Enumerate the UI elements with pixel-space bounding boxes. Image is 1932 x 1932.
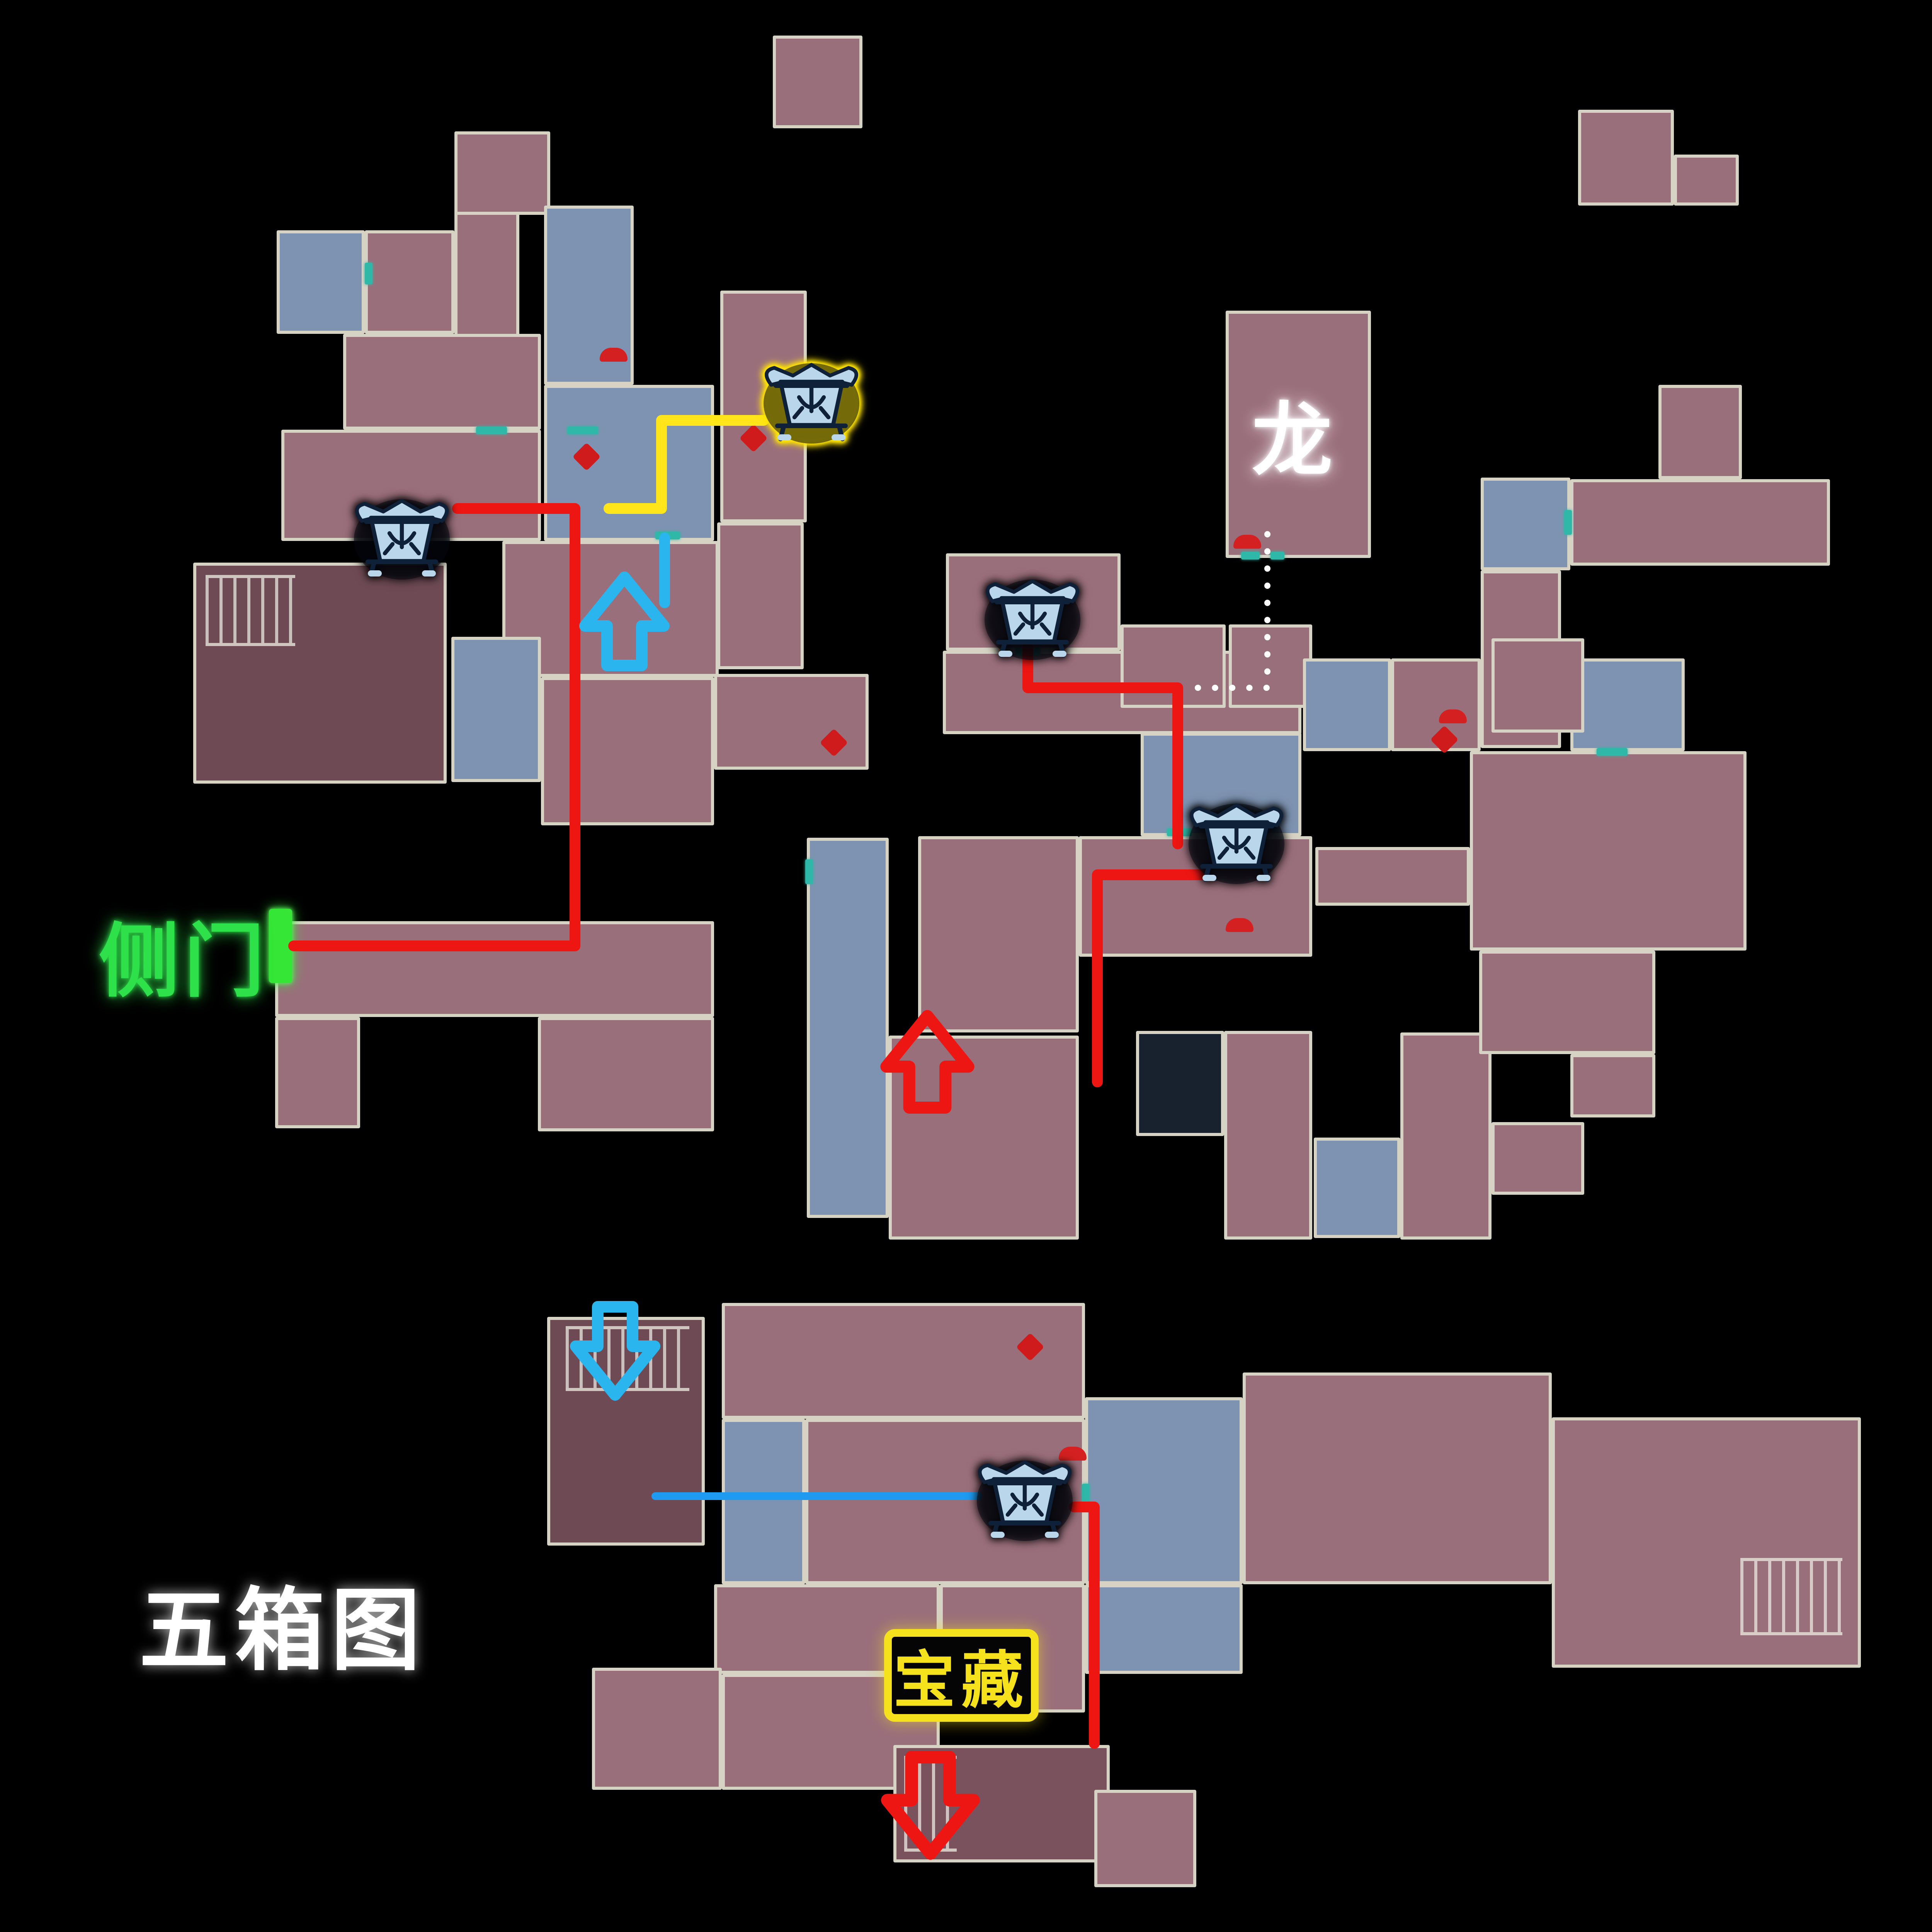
room-57: [1085, 1584, 1243, 1674]
room-8: [544, 385, 714, 541]
treasure-label: 宝藏: [884, 1629, 1039, 1722]
room-44: [1479, 951, 1655, 1054]
room-21: [946, 553, 1121, 651]
room-16: [275, 921, 714, 1017]
room-47: [1674, 155, 1739, 206]
room-40: [1658, 385, 1742, 479]
map-stage: 龙 侧门 五箱图 宝藏: [0, 0, 1932, 1932]
room-41: [1492, 638, 1584, 733]
room-53: [1243, 1372, 1552, 1584]
rack-shelf-0: [206, 575, 295, 646]
room-7: [281, 430, 541, 541]
teal-door-marker-4: [1241, 552, 1260, 560]
teal-door-marker-3: [655, 532, 680, 539]
room-36: [1570, 658, 1685, 751]
room-50: [722, 1419, 805, 1584]
room-42: [1470, 751, 1747, 951]
room-1: [454, 131, 550, 215]
room-10: [717, 522, 804, 669]
room-39: [1570, 479, 1830, 566]
room-59: [592, 1668, 722, 1790]
room-32: [1229, 624, 1312, 708]
room-38: [1481, 478, 1570, 570]
teal-door-marker-0: [365, 263, 372, 284]
rack-shelf-3: [904, 1756, 957, 1852]
screenshot-viewport: 龙 侧门 五箱图 宝藏: [0, 0, 1932, 1932]
teal-door-marker-9: [1167, 828, 1192, 836]
room-43: [1315, 847, 1470, 906]
room-20: [889, 1036, 1079, 1240]
dragon-label: 龙: [1252, 376, 1332, 492]
teal-door-marker-6: [1564, 510, 1572, 535]
teal-door-marker-7: [1597, 748, 1628, 756]
room-14: [541, 677, 714, 825]
room-17: [275, 1017, 360, 1128]
room-25: [918, 836, 1079, 1032]
room-45: [1570, 1054, 1655, 1117]
room-26: [1136, 1031, 1224, 1136]
room-4: [277, 230, 365, 334]
room-13: [451, 637, 541, 782]
room-0: [773, 36, 862, 128]
rack-shelf-1: [566, 1326, 689, 1391]
side-door-label: 侧门: [99, 896, 269, 1012]
room-49: [722, 1303, 1085, 1419]
room-27: [1224, 1031, 1312, 1240]
room-6: [343, 334, 541, 430]
teal-door-marker-5: [1270, 552, 1284, 560]
room-61: [1094, 1790, 1196, 1887]
teal-door-marker-10: [1015, 648, 1040, 655]
room-2: [454, 212, 519, 338]
room-24: [1079, 836, 1312, 957]
room-52: [1085, 1397, 1243, 1584]
room-30: [1492, 1122, 1584, 1195]
rack-shelf-2: [1740, 1558, 1842, 1635]
room-28: [1400, 1032, 1492, 1240]
room-51: [805, 1419, 1085, 1584]
teal-door-marker-8: [805, 859, 813, 884]
room-33: [1121, 624, 1226, 708]
room-29: [1314, 1138, 1400, 1238]
room-19: [807, 838, 889, 1218]
room-46: [1578, 110, 1674, 206]
room-23: [1141, 733, 1301, 836]
teal-door-marker-1: [476, 427, 507, 434]
room-34: [1303, 658, 1391, 751]
teal-door-marker-11: [1082, 1484, 1090, 1509]
room-15: [714, 674, 869, 770]
room-18: [538, 1017, 714, 1131]
teal-door-marker-2: [567, 427, 598, 434]
room-5: [365, 230, 454, 334]
room-9: [720, 291, 807, 522]
green-side-door-marker: [269, 909, 292, 983]
map-title-label: 五箱图: [139, 1558, 427, 1688]
